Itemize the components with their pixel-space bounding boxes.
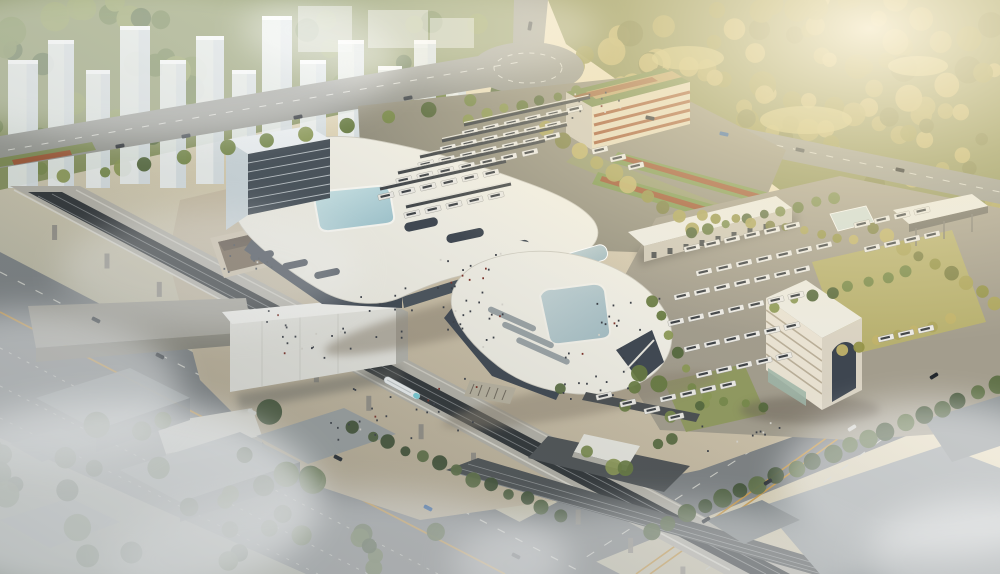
- aerial-rendering-stage: [0, 0, 1000, 574]
- transit-hub-aerial-rendering: [0, 0, 1000, 574]
- sun-glow: [0, 0, 1000, 574]
